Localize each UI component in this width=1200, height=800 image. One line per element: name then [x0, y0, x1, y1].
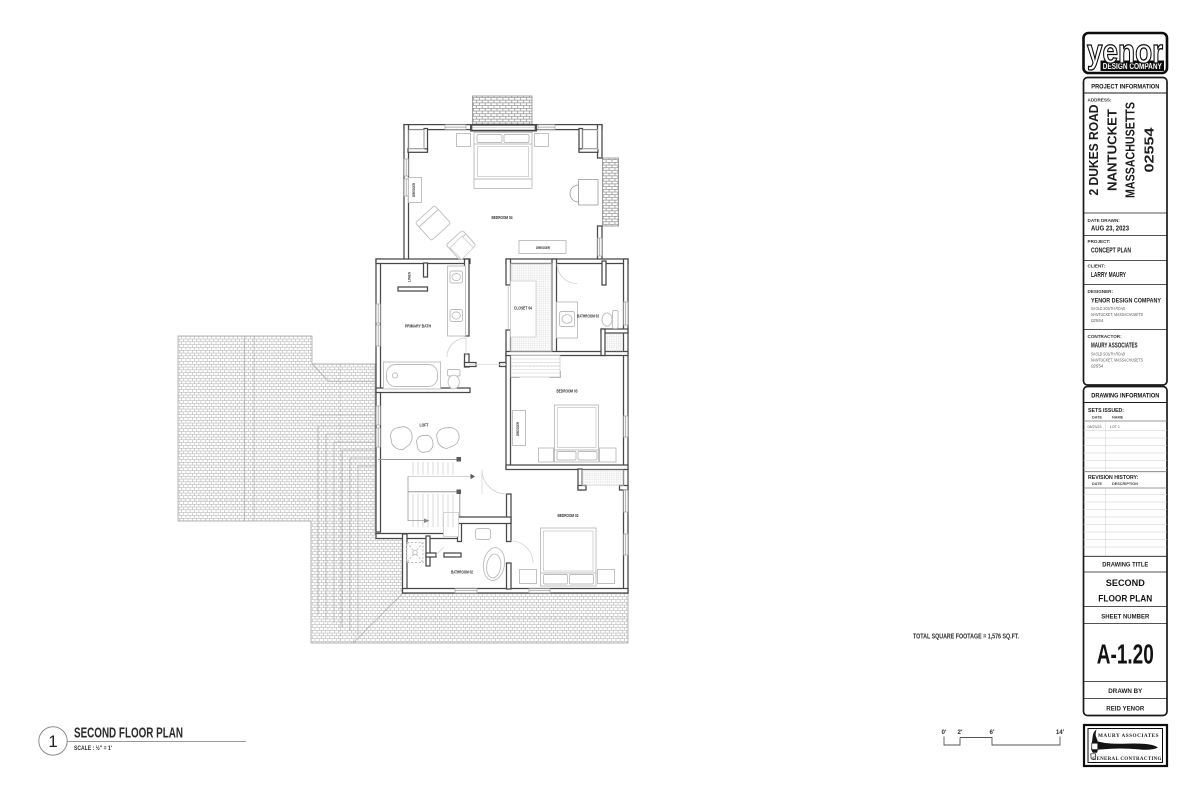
svg-text:TOTAL SQUARE FOOTAGE = 1,576 S: TOTAL SQUARE FOOTAGE = 1,576 SQ.FT. — [913, 634, 1019, 641]
svg-text:SETS ISSUED:: SETS ISSUED: — [1088, 408, 1124, 414]
svg-text:CONCEPT PLAN: CONCEPT PLAN — [1091, 246, 1131, 255]
svg-text:PRIMARY BATH: PRIMARY BATH — [405, 324, 431, 329]
svg-text:NANTUCKET: NANTUCKET — [1105, 109, 1120, 191]
svg-text:BATHROOM 02: BATHROOM 02 — [451, 570, 473, 575]
svg-text:DRAWING TITLE: DRAWING TITLE — [1102, 563, 1148, 569]
svg-text:14': 14' — [1056, 729, 1065, 736]
svg-text:DESIGNER:: DESIGNER: — [1088, 289, 1114, 294]
svg-text:BEDROOM 02: BEDROOM 02 — [558, 513, 579, 518]
svg-text:6': 6' — [990, 729, 995, 736]
svg-text:SECOND: SECOND — [1106, 578, 1145, 589]
svg-text:2 DUKES ROAD: 2 DUKES ROAD — [1086, 105, 1101, 196]
svg-text:LOT 1: LOT 1 — [1110, 425, 1120, 429]
svg-text:SCALE : ½" = 1': SCALE : ½" = 1' — [74, 744, 112, 752]
svg-text:MAURY ASSOCIATES: MAURY ASSOCIATES — [1098, 733, 1159, 739]
svg-text:02554: 02554 — [1142, 127, 1157, 173]
svg-text:LARRY MAURY: LARRY MAURY — [1091, 270, 1126, 279]
svg-text:NAME: NAME — [1112, 416, 1124, 420]
svg-text:REVISION HISTORY:: REVISION HISTORY: — [1088, 475, 1139, 481]
svg-text:SHEET NUMBER: SHEET NUMBER — [1101, 615, 1150, 621]
svg-text:CLOSET 04: CLOSET 04 — [514, 306, 532, 311]
svg-text:2': 2' — [958, 729, 963, 736]
svg-text:SECOND FLOOR PLAN: SECOND FLOOR PLAN — [74, 725, 183, 742]
svg-text:LOFT: LOFT — [420, 423, 429, 428]
svg-text:FLOOR PLAN: FLOOR PLAN — [1098, 594, 1152, 605]
svg-text:0': 0' — [942, 729, 947, 736]
svg-text:08/23/23: 08/23/23 — [1088, 425, 1102, 429]
svg-text:DRAWN BY: DRAWN BY — [1108, 689, 1142, 695]
svg-text:DESCRIPTION: DESCRIPTION — [1112, 482, 1138, 486]
svg-text:DATE: DATE — [1092, 482, 1103, 486]
svg-text:PROJECT:: PROJECT: — [1088, 239, 1111, 244]
svg-text:02554: 02554 — [1091, 363, 1103, 369]
svg-text:MAURY ASSOCIATES: MAURY ASSOCIATES — [1091, 341, 1138, 350]
svg-text:REID YENOR: REID YENOR — [1106, 706, 1144, 713]
svg-text:MASSACHUSETTS: MASSACHUSETTS — [1123, 102, 1138, 198]
svg-text:CONTRACTOR:: CONTRACTOR: — [1088, 334, 1123, 339]
svg-text:GENERAL CONTRACTING: GENERAL CONTRACTING — [1092, 757, 1161, 762]
svg-text:CLIENT:: CLIENT: — [1088, 264, 1106, 269]
svg-text:LINEN: LINEN — [408, 272, 412, 282]
svg-text:YENOR DESIGN COMPANY: YENOR DESIGN COMPANY — [1091, 298, 1162, 305]
svg-text:NANTUCKET, MASSACHUSETS: NANTUCKET, MASSACHUSETS — [1091, 357, 1144, 363]
svg-text:DRESSER: DRESSER — [536, 245, 550, 250]
svg-text:A-1.20: A-1.20 — [1097, 639, 1154, 670]
svg-text:02554: 02554 — [1091, 318, 1103, 324]
svg-text:BEDROOM 03: BEDROOM 03 — [557, 389, 578, 394]
svg-text:1: 1 — [48, 732, 57, 751]
svg-text:PROJECT INFORMATION: PROJECT INFORMATION — [1091, 84, 1159, 91]
svg-text:ADDRESS:: ADDRESS: — [1088, 98, 1112, 103]
svg-text:54 OLD SOUTH ROAD: 54 OLD SOUTH ROAD — [1091, 306, 1125, 312]
svg-text:NANTUCKET, MASSACHUSETS: NANTUCKET, MASSACHUSETS — [1091, 312, 1144, 318]
svg-text:BATHROOM 03: BATHROOM 03 — [577, 314, 599, 319]
svg-text:DATE DRAWN:: DATE DRAWN: — [1088, 218, 1121, 223]
svg-text:DRESSER: DRESSER — [515, 422, 520, 436]
svg-text:DRESSER: DRESSER — [411, 183, 416, 197]
svg-text:DATE: DATE — [1092, 416, 1103, 420]
svg-text:yenor: yenor — [1087, 33, 1163, 71]
svg-text:AUG 23, 2023: AUG 23, 2023 — [1091, 224, 1129, 233]
svg-text:BEDROOM 04: BEDROOM 04 — [492, 215, 513, 220]
svg-text:54 OLD SOUTH ROAD: 54 OLD SOUTH ROAD — [1091, 351, 1125, 357]
svg-text:DRAWING INFORMATION: DRAWING INFORMATION — [1091, 393, 1159, 400]
